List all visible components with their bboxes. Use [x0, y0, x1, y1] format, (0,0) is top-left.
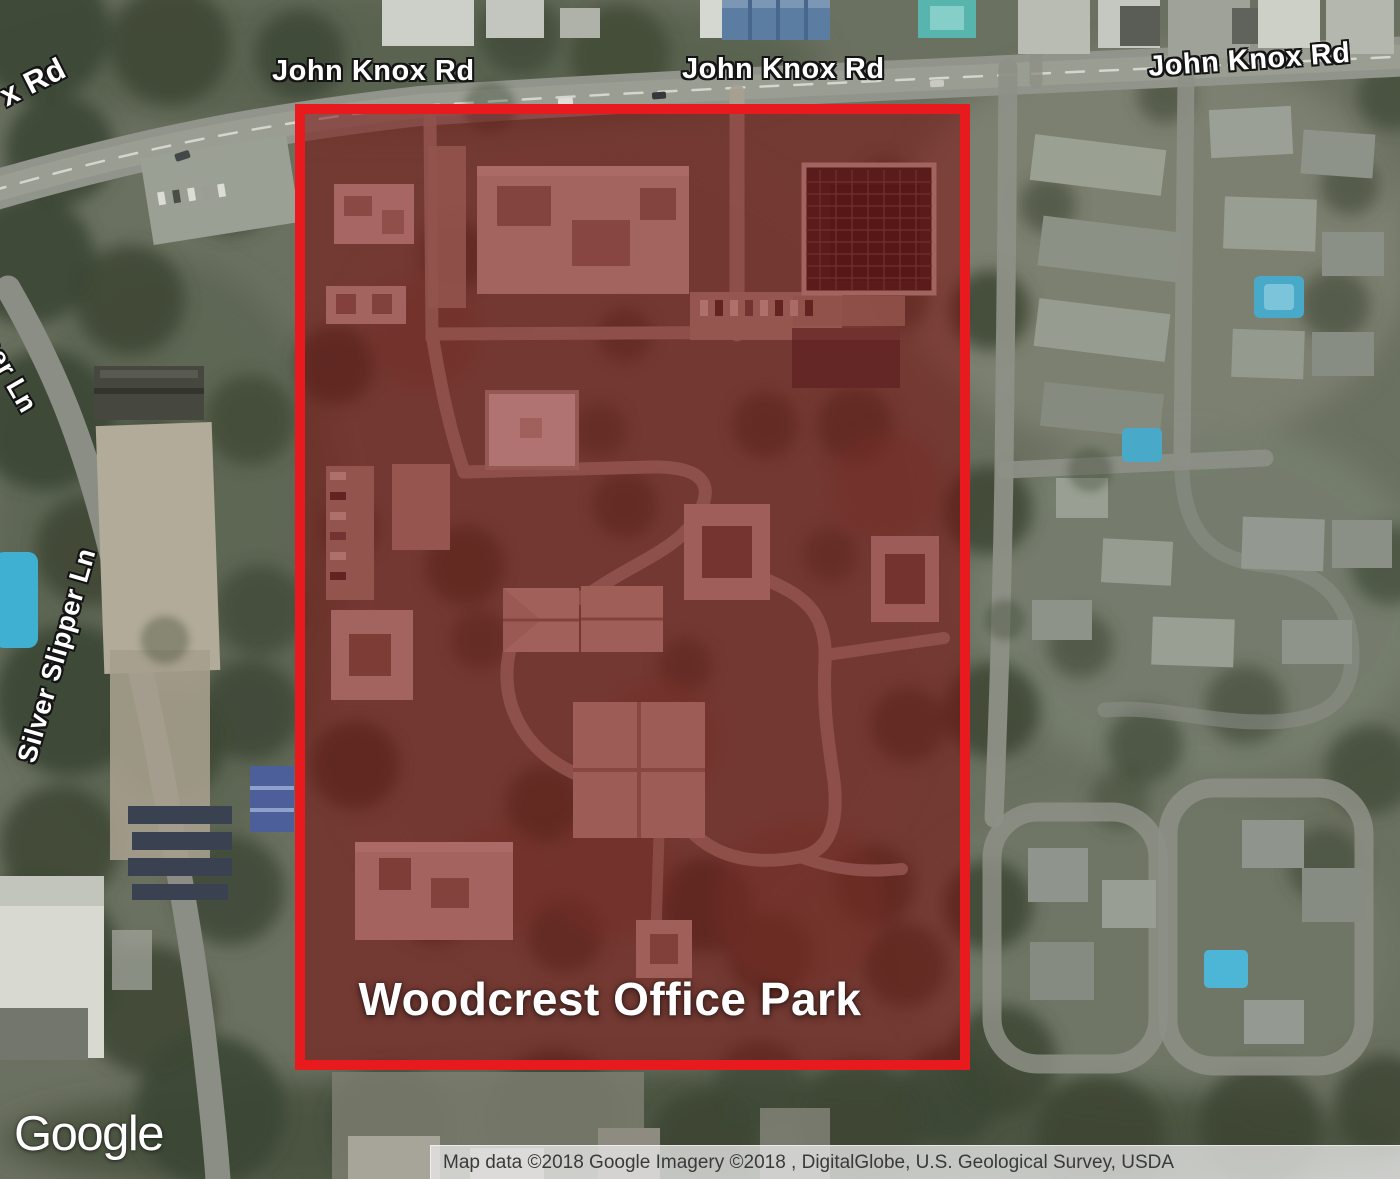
attribution-bar: Map data ©2018 Google Imagery ©2018 , Di…	[430, 1145, 1400, 1179]
road-label-john-knox-1: John Knox Rd	[272, 55, 475, 88]
attribution-text: Map data ©2018 Google Imagery ©2018 , Di…	[443, 1152, 1174, 1174]
region-title-label: Woodcrest Office Park	[280, 972, 940, 1026]
map-viewport[interactable]: x Rd John Knox Rd John Knox Rd John Knox…	[0, 0, 1400, 1179]
google-logo[interactable]: Google	[14, 1106, 163, 1162]
highlighted-region-woodcrest	[295, 104, 970, 1070]
road-label-john-knox-2: John Knox Rd	[682, 53, 885, 86]
